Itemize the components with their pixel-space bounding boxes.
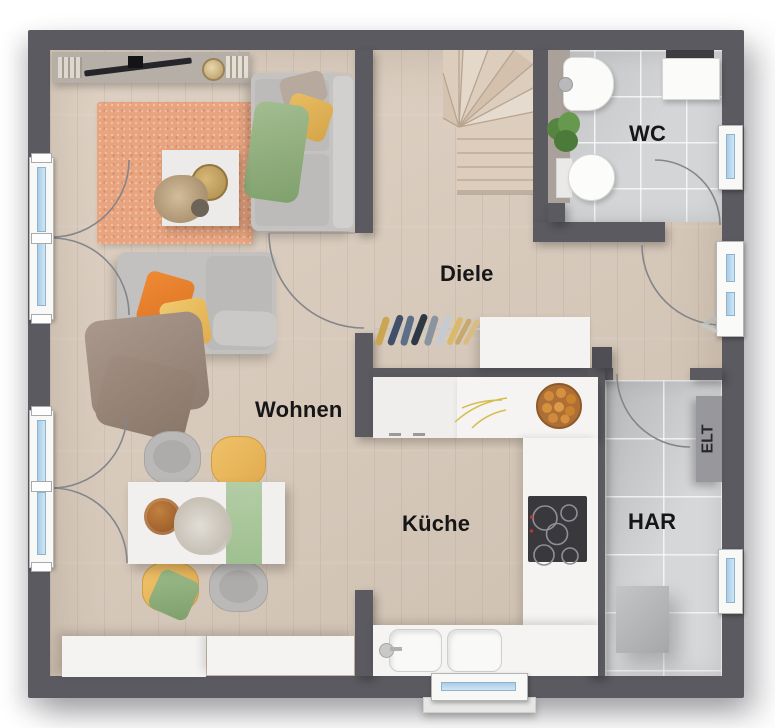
- wall-har-top-right: [690, 368, 722, 380]
- sideboard-bottom-right: [207, 636, 354, 675]
- har-appliance: [616, 586, 669, 653]
- room-label-diele: Diele: [440, 261, 494, 287]
- floor-plan: ELT: [0, 0, 775, 728]
- sofa-backrest: [333, 76, 353, 228]
- window-cap: [31, 562, 52, 572]
- chair-gray-2: [209, 561, 268, 612]
- room-label-wohnen: Wohnen: [255, 397, 343, 423]
- window-kitchen: [431, 673, 528, 701]
- wc-plant: [547, 112, 581, 154]
- deco-dish: [202, 58, 225, 81]
- kitchen-counter-top: [457, 377, 598, 438]
- wall-wc-left: [533, 50, 548, 222]
- window-wc: [718, 125, 743, 190]
- kitchen-faucet-stem: [390, 647, 402, 651]
- books-left: [58, 57, 82, 78]
- room-label-wc: WC: [629, 121, 666, 147]
- chair-yellow: [211, 436, 266, 487]
- chair-seat: [219, 570, 258, 603]
- wc-heater-body: [662, 58, 720, 100]
- wall-wohnen-kueche-stub: [355, 590, 373, 676]
- sideboard-bottom-left: [62, 636, 206, 677]
- entrance-door: [716, 241, 744, 337]
- wall-wc-ledge-stub: [548, 202, 565, 222]
- chair-gray: [144, 431, 201, 484]
- wall-wohnen-lower: [355, 333, 373, 437]
- window-cap: [31, 314, 52, 324]
- elt-cabinet: ELT: [696, 396, 722, 482]
- room-label-har: HAR: [628, 509, 676, 535]
- kitchen-counter-right: [523, 438, 598, 625]
- wall-wohnen-diele: [355, 50, 373, 233]
- elt-label: ELT: [700, 424, 718, 453]
- wc-sink: [563, 57, 614, 111]
- diele-cabinet: [480, 317, 590, 368]
- kitchen-sink-basin-2: [447, 629, 502, 672]
- window-har: [718, 549, 743, 614]
- window-cap: [31, 406, 52, 416]
- room-label-kueche: Küche: [402, 511, 470, 537]
- pillow-gray: [212, 310, 277, 347]
- plant-vase: [191, 199, 209, 217]
- wc-sink-faucet: [558, 77, 573, 92]
- kitchen-tall-cabinet: [373, 377, 457, 438]
- wall-pillar-diele: [592, 347, 612, 368]
- tv-stand: [128, 56, 143, 68]
- books-right: [226, 56, 248, 78]
- chair-seat: [153, 440, 191, 473]
- wc-heater: [662, 50, 718, 102]
- window-cap: [31, 153, 52, 163]
- wc-toilet: [568, 154, 615, 201]
- wall-wc-bottom: [533, 222, 665, 242]
- window-mullion: [31, 481, 52, 492]
- window-mullion: [31, 233, 52, 244]
